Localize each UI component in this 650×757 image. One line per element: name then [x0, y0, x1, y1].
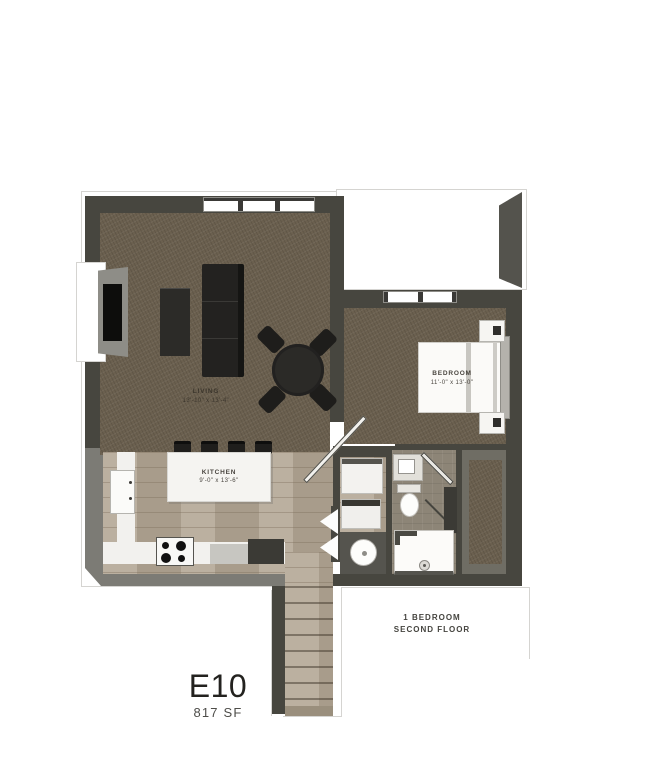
refrigerator [110, 470, 135, 514]
headboard [500, 336, 510, 419]
kitchen-dims: 9'-0" x 13'-6" [168, 477, 270, 486]
wall-living-divider [330, 196, 344, 422]
fridge-handle [129, 497, 132, 500]
window-mullion [418, 292, 423, 302]
bedroom-dims: 11'-0" x 13'-0" [404, 379, 500, 388]
dining-table [272, 344, 324, 396]
unit-label: E10 817 SF [166, 670, 270, 720]
plan-note-line1: 1 BEDROOM [384, 612, 480, 624]
fridge-handle [129, 481, 132, 484]
nightstand [479, 320, 505, 342]
plan-outline-bottom-left [81, 586, 281, 587]
vanity [444, 487, 457, 533]
bedroom-window [383, 291, 457, 303]
toilet-tank [397, 484, 421, 493]
sink [398, 459, 415, 474]
open-area [336, 189, 527, 290]
stairs [285, 586, 333, 706]
kitchen-island: KITCHEN 9'-0" x 13'-6" [167, 452, 271, 502]
window-frame [384, 292, 388, 302]
toilet [400, 493, 419, 517]
plan-note-line2: SECOND FLOOR [384, 624, 480, 636]
plan-outline-left [81, 191, 82, 587]
tv-icon [103, 284, 122, 341]
plan-note: 1 BEDROOM SECOND FLOOR [384, 612, 480, 636]
nightstand-drawer [493, 418, 501, 427]
sofa [202, 264, 244, 377]
burner [176, 541, 186, 551]
utility-appliance [341, 499, 381, 529]
stairs-landing [285, 552, 333, 586]
window-mullion [238, 198, 243, 211]
wall-service-bottom [332, 574, 522, 586]
plan-outline-bottom-right [341, 587, 530, 588]
burner [178, 555, 185, 562]
kitchen-name: KITCHEN [168, 468, 270, 478]
living-room-dims: 13'-10" x 13'-4" [158, 397, 254, 406]
sofa-cushion-seam [202, 301, 238, 302]
stairs-outline-right [341, 587, 342, 717]
wall-utility-left [332, 450, 340, 510]
open-area-wall [499, 192, 522, 288]
dishwasher [210, 544, 248, 564]
kitchen-counter-end [248, 539, 284, 564]
water-heater [350, 539, 377, 566]
washer-dryer [341, 458, 383, 494]
unit-area: 817 SF [166, 705, 270, 720]
plan-outline-right [529, 587, 530, 659]
nightstand [479, 412, 505, 434]
media-console [160, 288, 190, 356]
living-room-name: LIVING [158, 387, 254, 397]
living-window [203, 197, 315, 212]
kitchen-label: KITCHEN 9'-0" x 13'-6" [168, 468, 270, 487]
water-heater-cap [362, 551, 367, 556]
plan-outline-top [81, 191, 340, 192]
floor-plan-canvas: KITCHEN 9'-0" x 13'-6" LIV [0, 0, 650, 757]
stove [156, 537, 194, 566]
nightstand-drawer [493, 326, 501, 335]
bedroom-label: BEDROOM 11'-0" x 13'-0" [404, 369, 500, 388]
sofa-cushion-seam [202, 338, 238, 339]
wall-closet-right [506, 450, 522, 586]
appliance-edge [342, 500, 380, 506]
closet-floor [469, 460, 502, 564]
burner [162, 542, 169, 549]
unit-code: E10 [166, 670, 270, 702]
stairs-outline-bottom [283, 716, 341, 717]
window-mullion [275, 198, 280, 211]
tub-edge [395, 531, 400, 545]
bedroom-name: BEDROOM [404, 369, 500, 379]
burner [161, 553, 171, 563]
drain-dot [423, 564, 426, 567]
window-frame [452, 292, 456, 302]
appliance-edge [342, 459, 382, 464]
window-frame [204, 198, 314, 201]
drain-icon [419, 560, 430, 571]
living-room-label: LIVING 13'-10" x 13'-4" [158, 387, 254, 406]
stairs-bottom-step [285, 706, 333, 716]
